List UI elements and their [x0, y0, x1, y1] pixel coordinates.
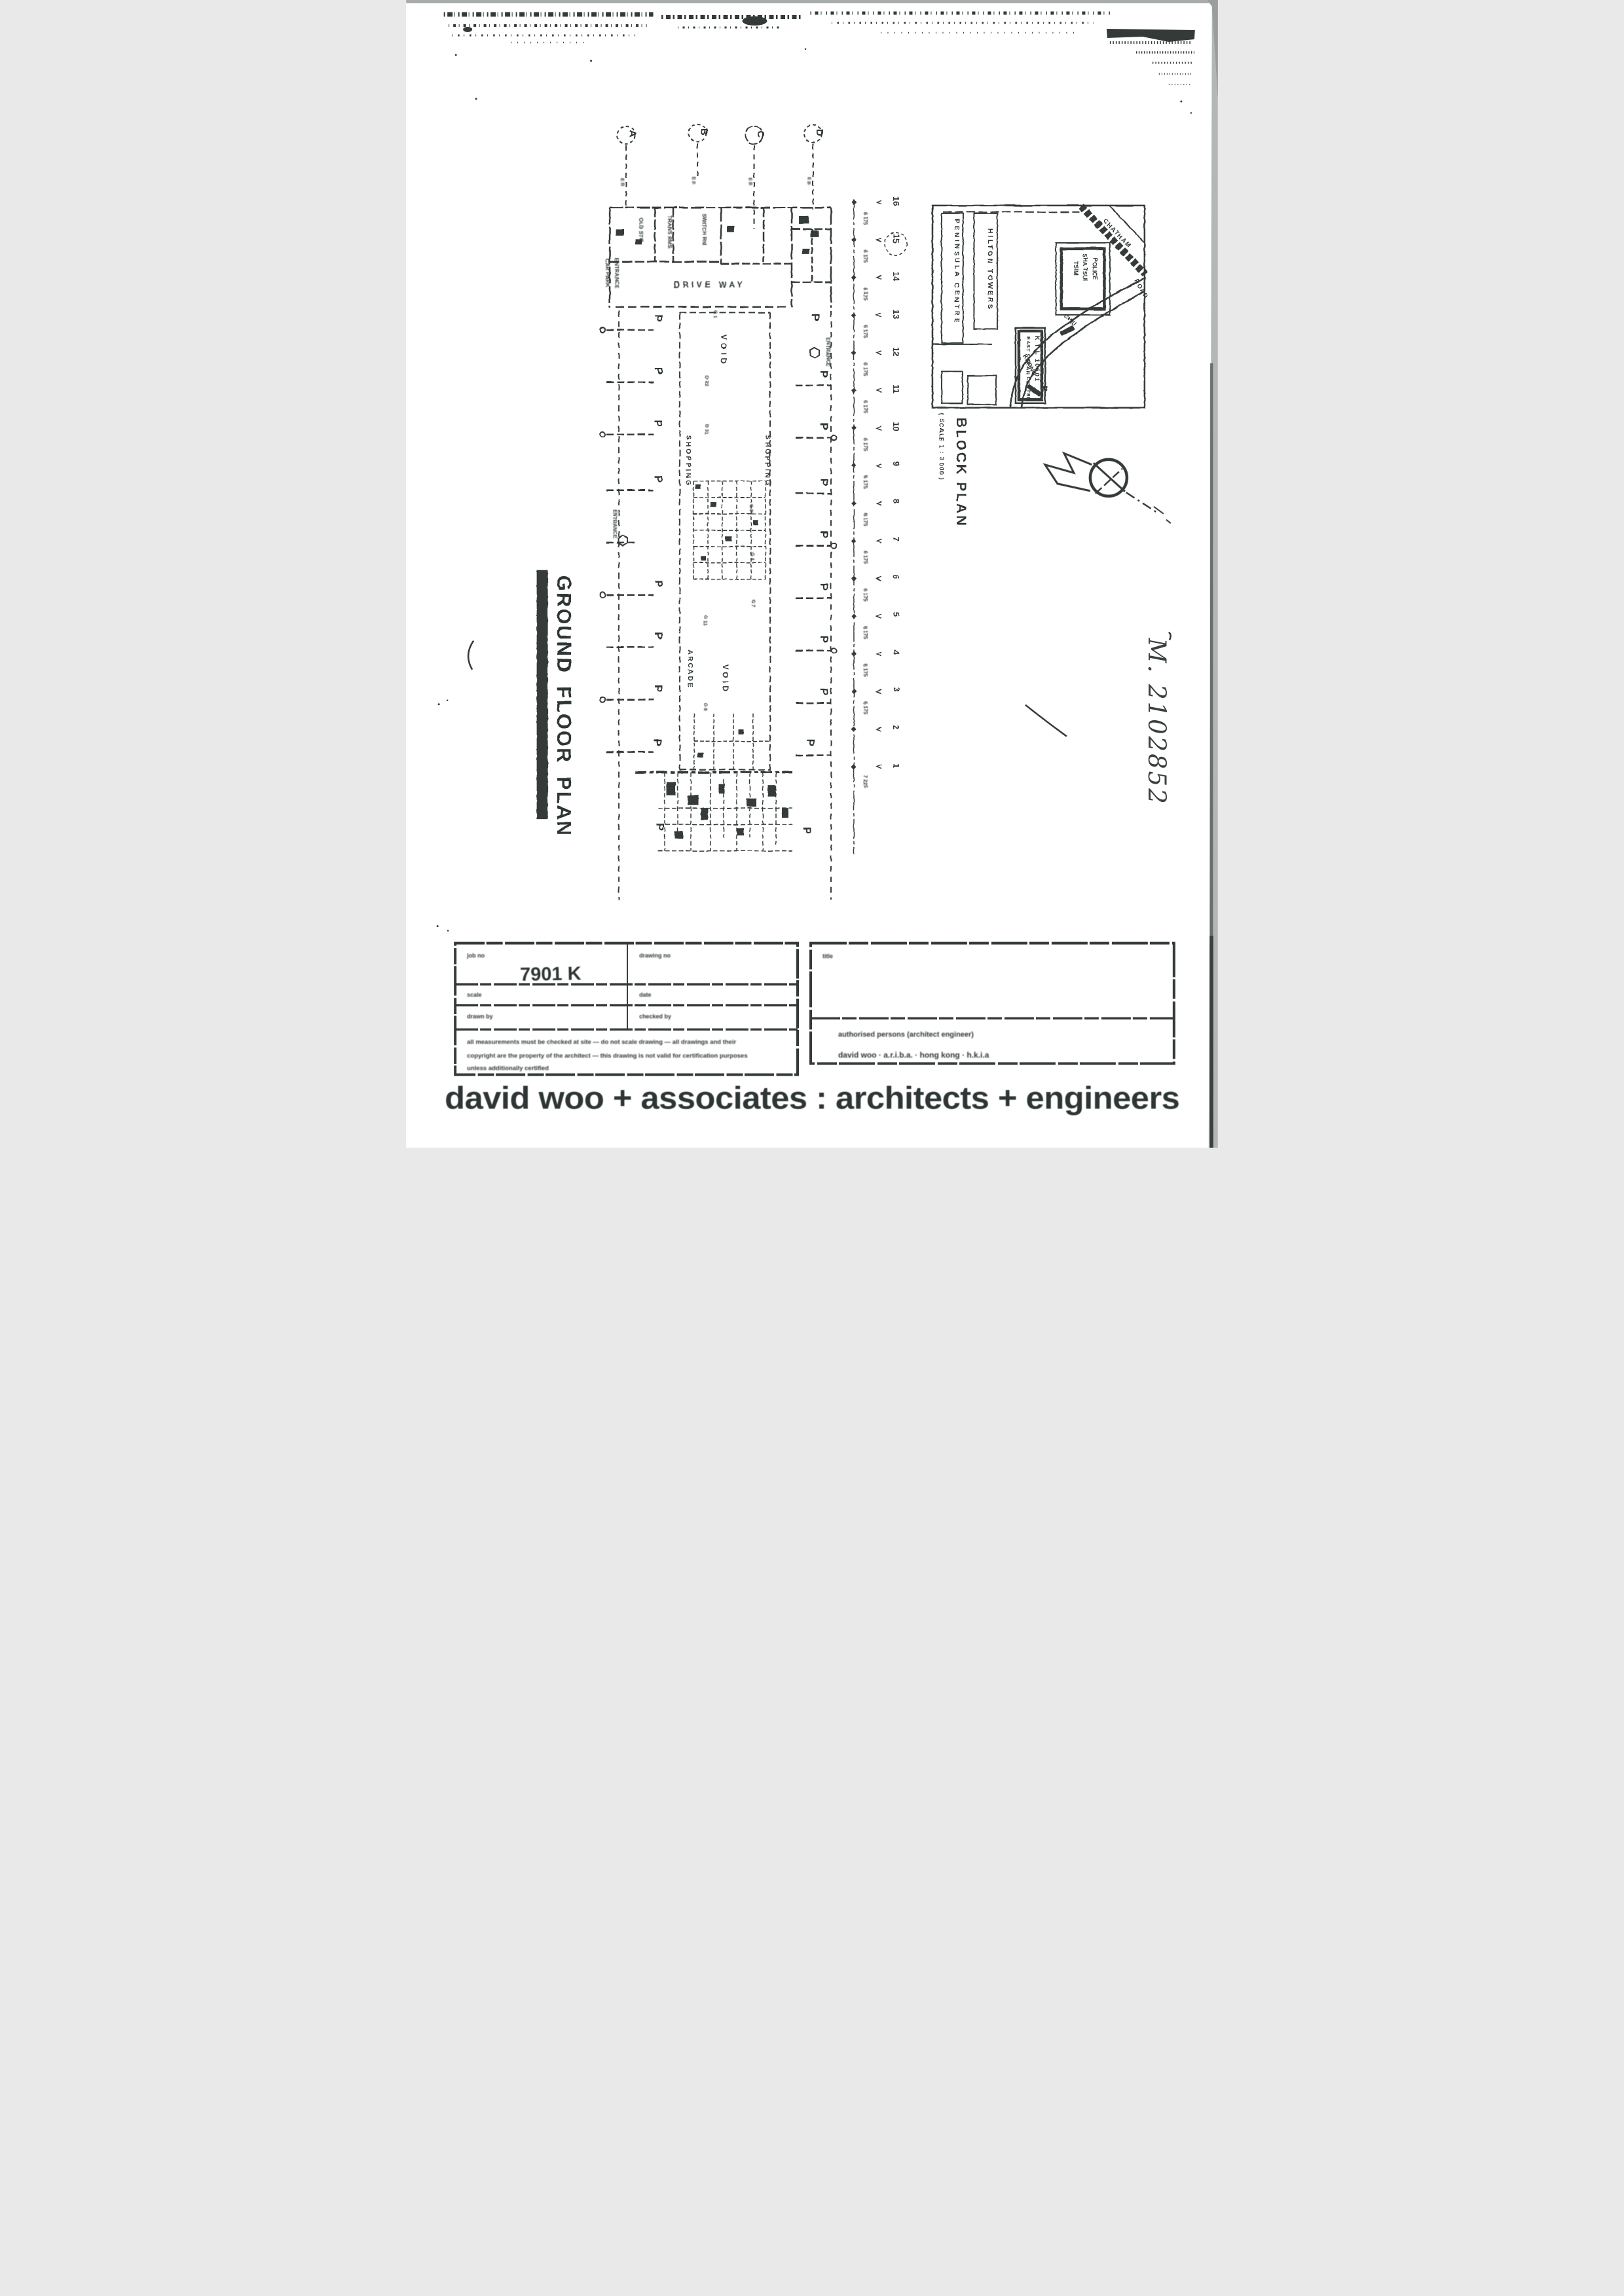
stall-code: G 87	[748, 504, 754, 515]
disclaimer-line-1: all measurements must be checked at site…	[467, 1039, 736, 1046]
title-label: title	[822, 953, 833, 960]
room-label-old-sto: OLD STO	[638, 217, 644, 242]
floor-plan: A B C D E B E B E B E B	[600, 124, 907, 900]
grid-number: 9	[891, 462, 901, 466]
grid-sub-label: E B	[619, 178, 624, 186]
stall-code: G 1	[712, 310, 718, 318]
grid-sub-label: E B	[691, 177, 695, 185]
grid-number: 1	[891, 763, 901, 768]
block-plan: PENINSULA CENTRE HILTON TOWERS TSIM SHA …	[932, 206, 1150, 527]
handwritten-number: M. 2102852	[1143, 638, 1171, 806]
void-label: VOID	[719, 335, 728, 367]
grid-number: 3	[891, 687, 901, 692]
date-label: date	[639, 992, 651, 998]
parking-p: P	[818, 583, 830, 591]
dim-text: 6 175	[862, 664, 868, 678]
car-park-entrance-label: ENTRANCE	[614, 258, 620, 289]
arcade-label: ARCADE	[686, 649, 693, 689]
job-no-value: 7901 K	[520, 964, 581, 986]
void-label: VOID	[721, 665, 730, 694]
shopping-strip: VOID SHOPPING SHOPPING ARCADE VOID G 1 D…	[680, 310, 771, 771]
checked-by-label: checked by	[639, 1013, 671, 1020]
hilton-towers-label: HILTON TOWERS	[986, 228, 993, 311]
grid-number: 12	[891, 347, 901, 356]
title-block: job no drawing no 7901 K scale date draw…	[455, 943, 1174, 1075]
parking-p: P	[818, 371, 830, 378]
parking-p: P	[818, 423, 830, 430]
parking-p: P	[652, 475, 665, 483]
dim-text: 6 175	[862, 513, 868, 527]
pen-stroke	[1025, 705, 1067, 737]
plan-title-text: GROUND FLOOR PLAN	[553, 575, 576, 837]
grid-sub-label: E B	[807, 177, 811, 185]
dim-text: 6 175	[862, 287, 868, 301]
plan-title-underline-bar	[537, 570, 548, 819]
plan-title: GROUND FLOOR PLAN	[537, 570, 576, 837]
dim-text: 6 175	[862, 701, 868, 715]
stray-pen-arc	[468, 641, 473, 670]
disclaimer-line-2: copyright are the property of the archit…	[467, 1053, 747, 1060]
credit-line-1: authorised persons (architect engineer)	[838, 1031, 974, 1039]
drawn-by-label: drawn by	[467, 1013, 492, 1020]
dim-text: 6 175	[862, 438, 868, 452]
left-parking-column: P P P P P P P P P ENTRANCE	[600, 311, 666, 900]
job-no-label: job no	[466, 953, 485, 959]
dim-text: 6 175	[862, 475, 868, 489]
grid-number: 16	[891, 196, 901, 206]
dim-text: 6 175	[862, 212, 868, 226]
entrance-label: ENTRANCE	[612, 509, 618, 539]
grid-number: 4	[891, 649, 901, 655]
dim-text: 6 175	[862, 551, 868, 564]
carpark-block: OLD STO TRANS RMS SWITCH RM DRIVE WAY CA…	[604, 208, 831, 308]
grid-letter-d: D	[814, 129, 825, 136]
parking-p: P	[818, 479, 830, 486]
parking-p: P	[818, 688, 830, 695]
credit-line-2: david woo · a.r.i.b.a. · hong kong · h.k…	[838, 1051, 989, 1060]
grid-number: 7	[891, 537, 901, 541]
parking-p: P	[652, 367, 665, 374]
grid-number: 14	[891, 272, 901, 282]
dimension-column: 6 175 6 175 6 175 6 175 6 175 6 175 6 17…	[851, 196, 907, 854]
firm-name: david woo + associates : architects + en…	[445, 1081, 1179, 1116]
dim-text: 6 175	[862, 363, 868, 376]
entrance-label: ENTRANCE	[825, 338, 831, 367]
grid-number: 11	[891, 384, 901, 393]
shopping-label: SHOPPING	[764, 435, 771, 487]
room-label-trans: TRANS RMS	[667, 215, 673, 249]
grid-number: 5	[891, 612, 901, 617]
disclaimer-line-3: unless additionally certified	[467, 1065, 549, 1072]
dim-text: 6 175	[862, 589, 868, 602]
drive-way-label: DRIVE WAY	[674, 280, 745, 289]
dim-text: 6 175	[862, 325, 868, 338]
grid-number: 13	[891, 309, 901, 318]
grid-letter-b: B	[699, 128, 710, 136]
parking-p: P	[809, 314, 822, 321]
grid-letter-c: C	[755, 130, 766, 137]
parking-p: P	[652, 685, 665, 692]
peninsula-centre-label: PENINSULA CENTRE	[953, 219, 960, 325]
grid-sub-label: E B	[748, 177, 752, 185]
stall-code: D 22	[704, 376, 710, 386]
room-label-switch: SWITCH RM	[701, 213, 708, 246]
stall-code: G 11	[703, 615, 709, 626]
parking-p: P	[652, 632, 665, 640]
parking-p: P	[652, 315, 665, 322]
stall-code: G 7	[750, 600, 756, 608]
car-park-label: CAR PARK	[604, 259, 611, 288]
scanned-drawing-sheet: A B C D E B E B E B E B	[406, 0, 1218, 1148]
grid-number: 2	[891, 725, 901, 729]
grid-number: 10	[891, 422, 901, 431]
stall-code: G 8	[703, 703, 709, 711]
block-plan-scale: ( SCALE 1 : 3 000 )	[938, 413, 945, 481]
parking-p: P	[652, 420, 665, 427]
dim-text: 6 175	[862, 400, 868, 414]
parking-p: P	[818, 531, 830, 538]
north-arrow-icon	[1045, 453, 1171, 523]
stall-code: G 4	[750, 553, 756, 561]
police-label: TSIM	[1073, 261, 1079, 275]
grid-number: 8	[891, 499, 901, 503]
scale-label: scale	[467, 992, 481, 998]
grid-number: 6	[891, 574, 901, 579]
parking-p: P	[652, 739, 664, 746]
parking-p: P	[804, 739, 817, 746]
parking-p: P	[818, 636, 830, 643]
parking-p: P	[652, 580, 665, 587]
entrance-symbol	[810, 348, 819, 358]
stall-code: D 31	[704, 424, 710, 435]
police-label: SHA TSUI	[1082, 253, 1088, 281]
dim-text: 6 175	[862, 626, 868, 640]
plan-grid-numbers: 16 15 14 13 12 11 10 9 8 7 6 5 4 3 2 1	[877, 196, 907, 769]
entrance-symbol	[618, 536, 627, 546]
shopping-label: SHOPPING	[684, 435, 692, 487]
dim-text: 6 175	[862, 249, 868, 263]
grid-number: 15	[891, 234, 901, 243]
block-plan-caption: BLOCK PLAN	[953, 418, 969, 528]
bottom-rooms-block	[635, 773, 792, 851]
right-parking-column: P ENTRANCE P P P P P P P P P	[796, 311, 836, 900]
parking-p: P	[801, 827, 813, 834]
drawing-no-label: drawing no	[639, 953, 671, 959]
dim-text: 7 225	[862, 775, 868, 789]
site-parking-p: P	[1039, 386, 1050, 392]
grid-letter-a: A	[627, 130, 638, 137]
police-label: POLICE	[1092, 258, 1098, 280]
handwriting: M. 2102852	[1025, 632, 1171, 806]
